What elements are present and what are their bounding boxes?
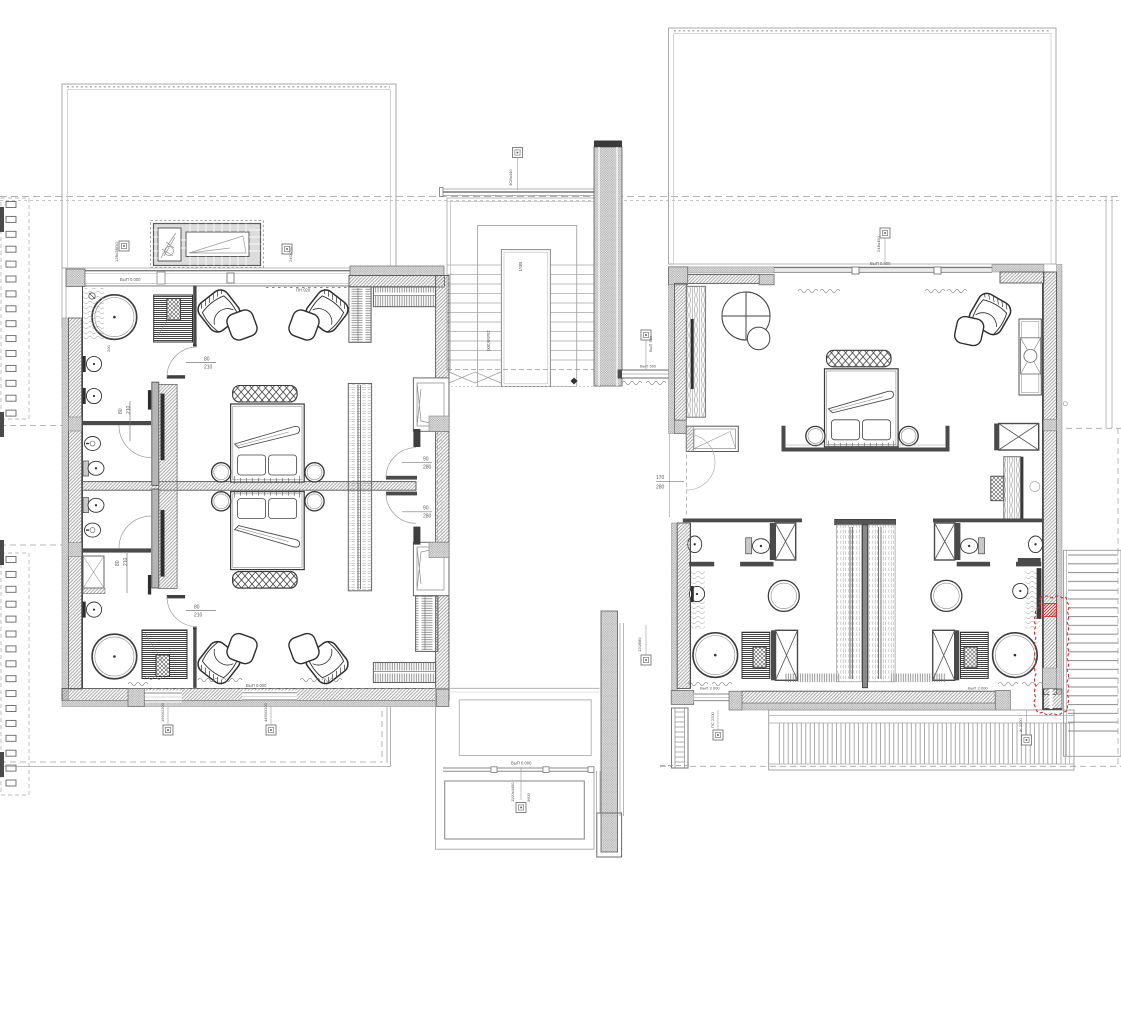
svg-text:ВыП 0.000: ВыП 0.000 <box>246 683 267 688</box>
svg-text:12ВхЗВО/2: 12ВхЗВО/2 <box>114 241 119 262</box>
svg-text:4450/3100: 4450/3100 <box>263 702 268 722</box>
svg-text:ВыП 3.000: ВыП 3.000 <box>700 686 720 691</box>
svg-text:80: 80 <box>115 560 121 566</box>
svg-text:3600: 3600 <box>526 792 531 802</box>
svg-text:ВЕЛ: ВЕЛ <box>518 262 523 271</box>
svg-text:80: 80 <box>118 408 124 414</box>
svg-text:210: 210 <box>194 613 203 619</box>
svg-text:ВыП 0.000: ВыП 0.000 <box>120 277 141 282</box>
svg-text:ВыП 0.000: ВыП 0.000 <box>511 761 532 766</box>
svg-text:90: 90 <box>423 506 429 512</box>
svg-text:1950/2200: 1950/2200 <box>160 702 165 722</box>
svg-text:120/880: 120/880 <box>637 637 642 652</box>
svg-text:280: 280 <box>423 514 432 520</box>
svg-text:210: 210 <box>123 557 129 566</box>
svg-text:15x58/300: 15x58/300 <box>486 330 491 352</box>
svg-text:ВыП 50л: ВыП 50л <box>648 335 653 352</box>
svg-text:170: 170 <box>656 475 665 481</box>
svg-text:ЗСВх440: ЗСВх440 <box>508 169 513 186</box>
svg-text:ВыП 3.000: ВыП 3.000 <box>968 686 988 691</box>
svg-text:ВыП 500: ВыП 500 <box>640 364 657 369</box>
svg-text:200: 200 <box>106 345 111 352</box>
svg-text:ПН 920: ПН 920 <box>296 288 311 293</box>
svg-text:24Вх450: 24Вх450 <box>876 235 881 252</box>
svg-text:80: 80 <box>204 357 210 363</box>
svg-text:90: 90 <box>423 457 429 463</box>
svg-text:280: 280 <box>656 485 665 491</box>
svg-text:1100x4400: 1100x4400 <box>510 782 515 802</box>
svg-text:280: 280 <box>423 465 432 471</box>
svg-text:ВыП 0.000: ВыП 0.000 <box>870 261 891 266</box>
svg-text:Ж 2200: Ж 2200 <box>1018 718 1023 732</box>
svg-text:ПС 2200: ПС 2200 <box>710 711 715 728</box>
svg-text:80: 80 <box>194 605 200 611</box>
svg-text:210: 210 <box>204 365 213 371</box>
svg-text:210: 210 <box>126 405 132 414</box>
svg-text:24О/250: 24О/250 <box>288 246 293 262</box>
